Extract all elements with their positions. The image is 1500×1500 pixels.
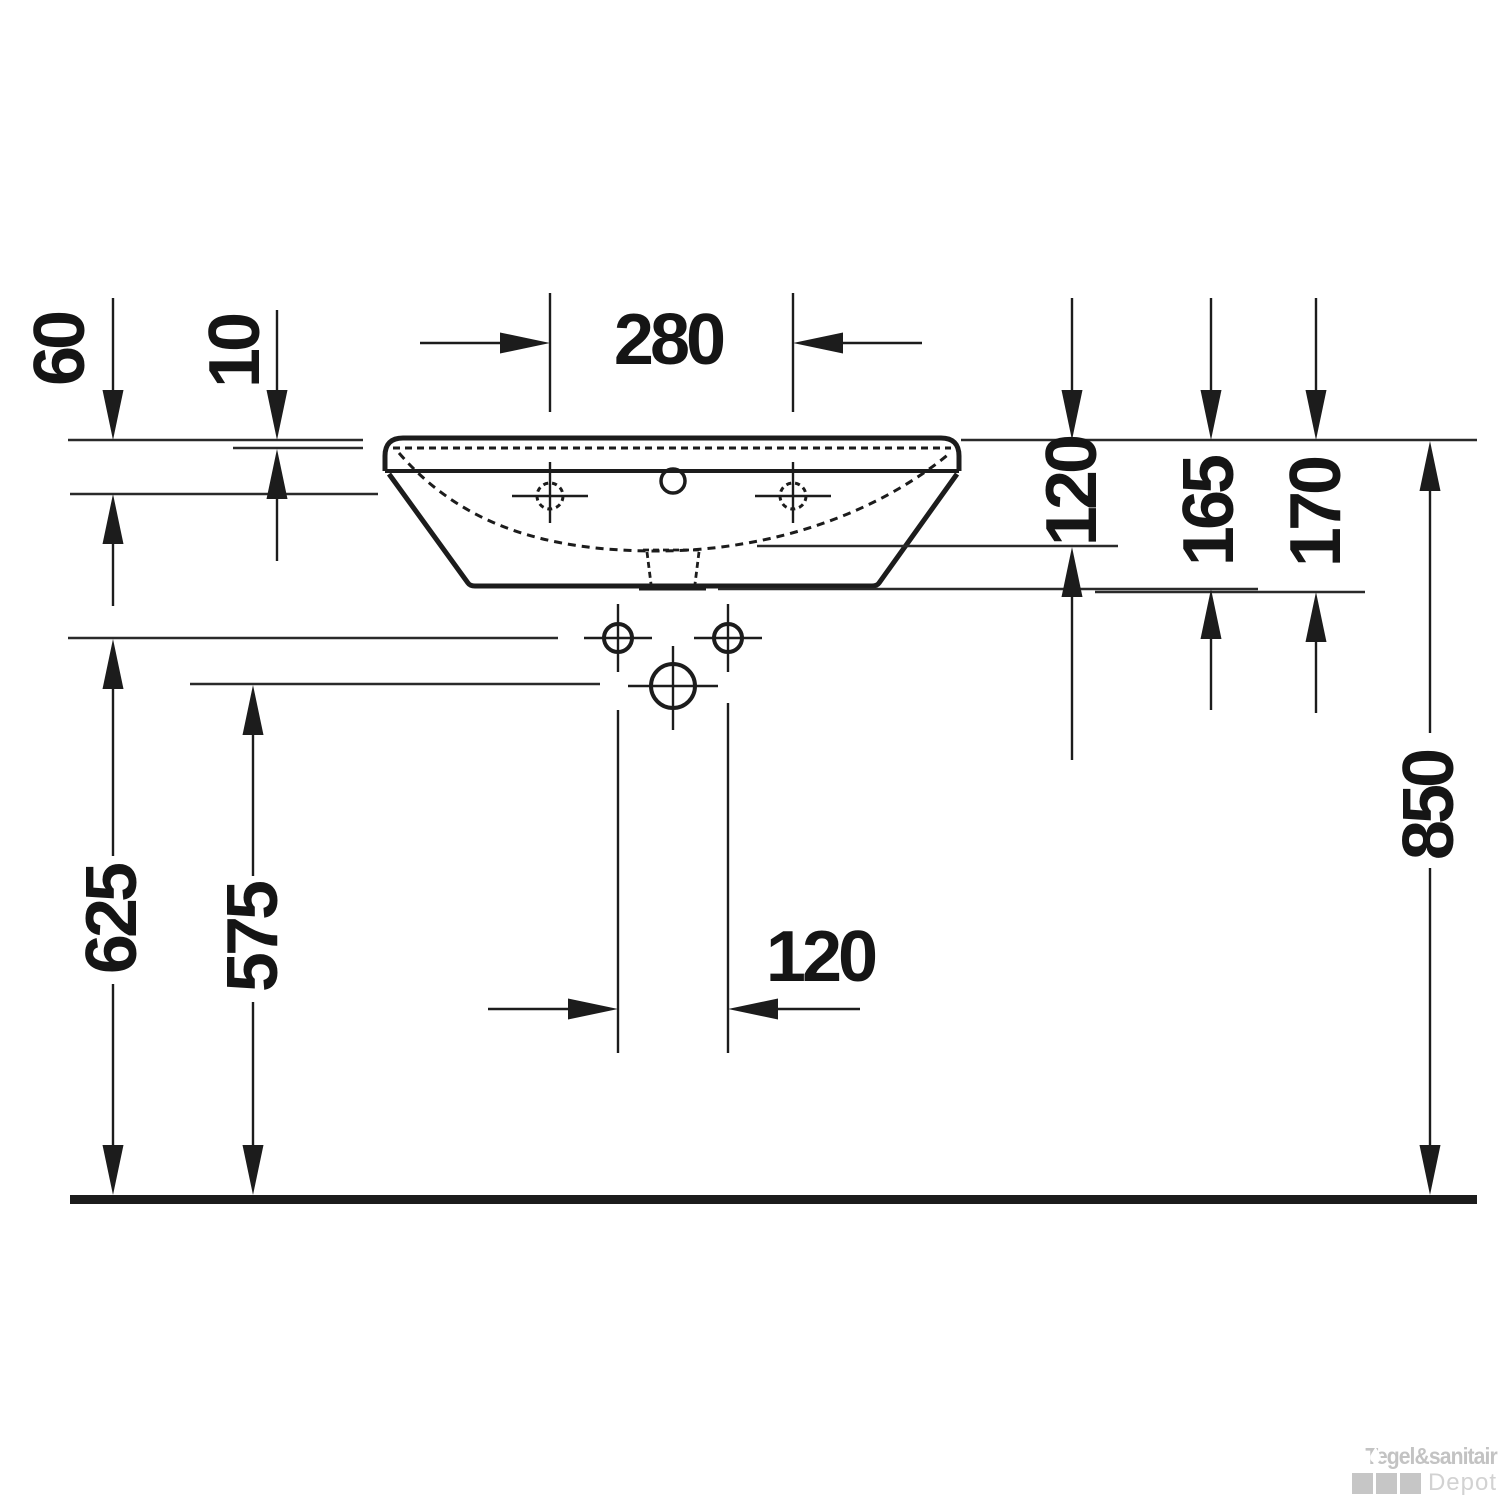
dim-label-60: 60	[24, 314, 96, 386]
watermark-logo-row: Depot	[1352, 1471, 1497, 1495]
basin-drain-funnel-dashed	[643, 550, 702, 584]
dim-label-850: 850	[1393, 752, 1465, 860]
watermark-square-drop	[1352, 1473, 1373, 1494]
dim-label-575: 575	[217, 884, 289, 992]
floor-line	[70, 1195, 1477, 1204]
dim-label-165: 165	[1173, 458, 1245, 566]
basin-outline	[385, 438, 959, 587]
watermark: Tegel&sanitair Depot	[1365, 1444, 1497, 1495]
mounting-holes	[584, 604, 762, 730]
dim-label-120-right: 120	[1036, 438, 1108, 546]
dim-label-120-bottom: 120	[766, 921, 874, 993]
dim-60-arrows	[103, 298, 124, 606]
dim-label-280: 280	[614, 304, 722, 376]
washbasin-dimension-diagram	[0, 0, 1500, 1500]
mounting-hole-crosshairs	[584, 604, 762, 730]
watermark-square-2	[1376, 1473, 1397, 1494]
basin-body	[389, 474, 957, 586]
basin-rim-band	[385, 438, 959, 471]
dim-120-bottom-arrows	[488, 703, 860, 1053]
water-drop-icon	[1365, 1444, 1386, 1465]
dim-label-625: 625	[76, 866, 148, 974]
dim-label-10: 10	[199, 316, 271, 388]
watermark-sub-text: Depot	[1428, 1471, 1497, 1495]
dim-label-170: 170	[1280, 459, 1352, 567]
watermark-square-3	[1400, 1473, 1421, 1494]
technical-drawing-canvas: 60 10 280 120 165 170 850 625 575 120 Te…	[0, 0, 1500, 1500]
